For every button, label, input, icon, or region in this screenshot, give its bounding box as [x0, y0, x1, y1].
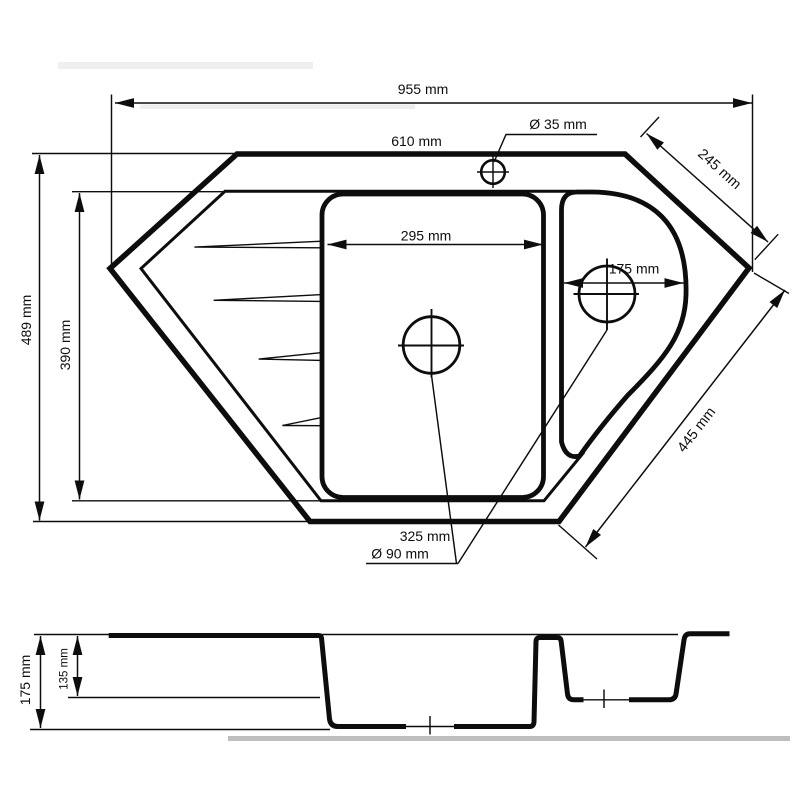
svg-text:325 mm: 325 mm	[400, 528, 451, 544]
svg-text:245 mm: 245 mm	[694, 146, 744, 193]
svg-text:489 mm: 489 mm	[18, 295, 34, 346]
svg-text:Ø 35 mm: Ø 35 mm	[529, 116, 587, 132]
svg-text:175 mm: 175 mm	[609, 261, 660, 277]
svg-text:175 mm: 175 mm	[17, 655, 33, 706]
svg-text:445 mm: 445 mm	[674, 404, 719, 455]
svg-text:Ø 90 mm: Ø 90 mm	[371, 546, 429, 562]
svg-text:390 mm: 390 mm	[57, 320, 73, 371]
svg-text:610 mm: 610 mm	[391, 133, 442, 149]
svg-text:955 mm: 955 mm	[398, 81, 449, 97]
svg-text:295 mm: 295 mm	[401, 228, 452, 244]
svg-text:135 mm: 135 mm	[59, 648, 71, 690]
